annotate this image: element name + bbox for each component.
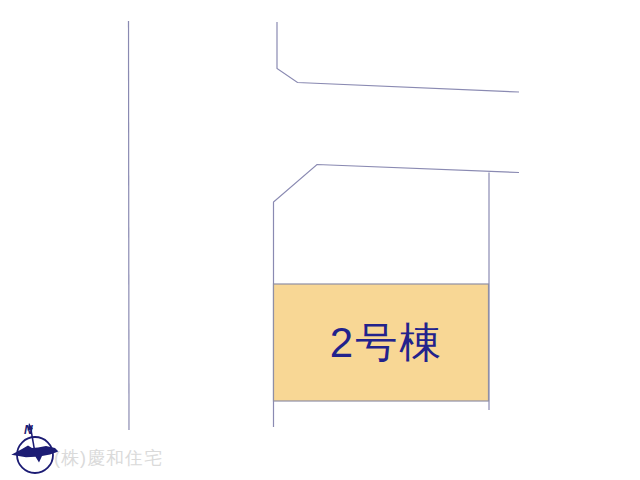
road-line-left — [129, 21, 130, 430]
company-watermark: (株)慶和住宅 — [54, 446, 163, 470]
compass-north-label: N — [24, 423, 33, 437]
site-plan-canvas: 2号棟 N (株)慶和住宅 — [0, 0, 640, 480]
site-plan-drawing — [0, 0, 640, 480]
lot-2-label: 2号棟 — [274, 284, 489, 401]
road-line-upper — [277, 22, 519, 92]
